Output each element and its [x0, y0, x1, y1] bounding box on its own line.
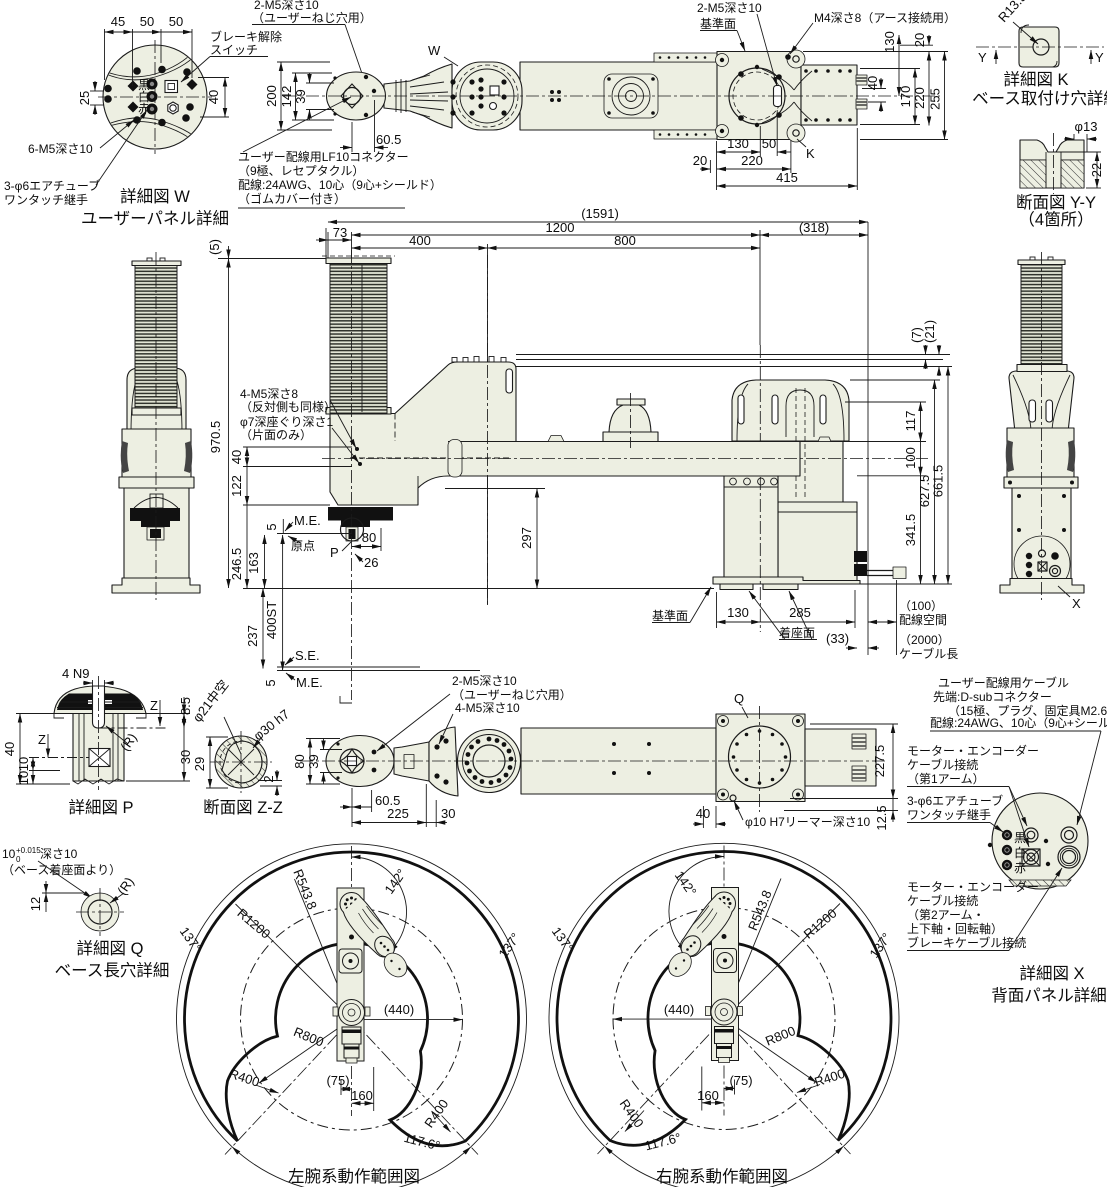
svg-text:M.E.: M.E. [294, 513, 321, 528]
svg-text:詳細図 W: 詳細図 W [120, 187, 190, 206]
svg-text:50: 50 [169, 14, 183, 29]
svg-text:右腕系動作範囲図: 右腕系動作範囲図 [656, 1167, 788, 1186]
svg-text:（ユーザーねじ穴用）: （ユーザーねじ穴用） [452, 687, 572, 702]
svg-text:ユーザー配線用ケーブル: ユーザー配線用ケーブル [938, 675, 1069, 690]
svg-text:（第1アーム）: （第1アーム） [907, 772, 985, 786]
svg-text:断面図 Y-Y: 断面図 Y-Y [1016, 193, 1096, 212]
svg-text:背面パネル詳細: 背面パネル詳細 [991, 986, 1107, 1005]
svg-text:詳細図 K: 詳細図 K [1003, 70, 1068, 89]
svg-text:ベース長穴詳細: ベース長穴詳細 [55, 961, 170, 980]
svg-text:φ10 H7リーマー深さ10: φ10 H7リーマー深さ10 [745, 815, 870, 829]
svg-text:詳細図 Q: 詳細図 Q [77, 939, 144, 958]
svg-text:800: 800 [614, 233, 636, 248]
svg-text:原点: 原点 [291, 539, 315, 553]
svg-text:30: 30 [178, 750, 193, 764]
svg-text:上下軸・回転軸）: 上下軸・回転軸） [907, 922, 1003, 936]
svg-text:ブレーキケーブル接続: ブレーキケーブル接続 [907, 935, 1026, 950]
svg-text:ケーブル長: ケーブル長 [899, 646, 958, 661]
svg-text:20: 20 [912, 33, 927, 47]
svg-text:(33): (33) [826, 631, 849, 646]
svg-text:122: 122 [229, 475, 244, 497]
svg-text:237: 237 [245, 625, 260, 647]
svg-text:(318): (318) [799, 220, 829, 235]
svg-text:40: 40 [865, 76, 880, 90]
svg-text:（2000）: （2000） [899, 633, 950, 647]
svg-text:246.5: 246.5 [229, 548, 244, 581]
svg-text:130: 130 [727, 605, 749, 620]
svg-text:（4箇所）: （4箇所） [1018, 210, 1093, 229]
svg-text:73: 73 [333, 225, 347, 240]
svg-text:341.5: 341.5 [903, 514, 918, 547]
svg-text:基準面: 基準面 [700, 16, 736, 31]
svg-text:6-M5深さ10: 6-M5深さ10 [28, 142, 93, 156]
svg-text:（ゴムカバー付き）: （ゴムカバー付き） [238, 191, 346, 206]
svg-text:X: X [1072, 596, 1081, 611]
svg-text:163: 163 [246, 552, 261, 574]
svg-text:2: 2 [261, 775, 276, 782]
svg-text:50: 50 [140, 14, 154, 29]
svg-text:227.5: 227.5 [872, 745, 887, 778]
svg-text:（9極、レセプタクル）: （9極、レセプタクル） [238, 163, 364, 178]
svg-text:W: W [428, 43, 441, 58]
svg-text:970.5: 970.5 [208, 421, 223, 454]
svg-text:（第2アーム・: （第2アーム・ [907, 908, 985, 922]
svg-text:ケーブル接続: ケーブル接続 [907, 757, 978, 772]
svg-text:1200: 1200 [546, 220, 575, 235]
svg-text:225: 225 [387, 806, 409, 821]
svg-text:基準面: 基準面 [652, 608, 688, 623]
svg-text:モーター・エンコーダー: モーター・エンコーダー [907, 743, 1039, 758]
svg-text:297: 297 [519, 527, 534, 549]
svg-text:130: 130 [727, 136, 749, 151]
svg-text:30: 30 [441, 806, 455, 821]
svg-text:(75): (75) [326, 1073, 349, 1088]
svg-text:+0.015: +0.015 [16, 846, 41, 855]
svg-text:ユーザー配線用LF10コネクター: ユーザー配線用LF10コネクター [238, 149, 409, 164]
svg-text:10: 10 [2, 847, 16, 861]
svg-text:3-φ6エアチューブ: 3-φ6エアチューブ [4, 178, 100, 193]
svg-text:130: 130 [882, 31, 897, 53]
svg-text:170: 170 [898, 86, 913, 108]
svg-text:Y: Y [978, 50, 987, 65]
svg-text:45: 45 [111, 14, 125, 29]
svg-text:スイッチ: スイッチ [210, 43, 258, 57]
svg-text:5: 5 [263, 679, 278, 686]
svg-text:4-M5深さ10: 4-M5深さ10 [455, 701, 520, 715]
svg-text:5: 5 [264, 523, 279, 530]
svg-text:(5): (5) [207, 239, 222, 255]
svg-text:10: 10 [16, 757, 31, 771]
svg-text:詳細図 P: 詳細図 P [68, 798, 133, 817]
svg-text:M.E.: M.E. [296, 675, 323, 690]
svg-text:2-M5深さ10: 2-M5深さ10 [452, 674, 517, 688]
svg-text:φ7深座ぐり深さ1: φ7深座ぐり深さ1 [240, 414, 333, 429]
svg-text:26: 26 [364, 555, 378, 570]
svg-text:Y: Y [1095, 50, 1104, 65]
svg-text:39: 39 [293, 89, 308, 103]
svg-text:（反対側も同様）: （反対側も同様） [240, 400, 336, 414]
svg-text:2-M5深さ10: 2-M5深さ10 [697, 1, 762, 15]
svg-text:（ベース着座面より）: （ベース着座面より） [2, 862, 121, 877]
svg-text:22: 22 [1089, 163, 1104, 177]
svg-text:配線空間: 配線空間 [899, 612, 947, 627]
svg-text:(1591): (1591) [581, 206, 619, 221]
svg-text:4-M5深さ8: 4-M5深さ8 [240, 387, 298, 401]
svg-text:Q: Q [734, 691, 744, 706]
svg-text:配線:24AWG、10心（9心+シールド）: 配線:24AWG、10心（9心+シールド） [238, 177, 442, 192]
svg-text:29: 29 [192, 757, 207, 771]
svg-text:K: K [806, 146, 815, 161]
svg-text:（片面のみ）: （片面のみ） [240, 428, 312, 442]
svg-text:40: 40 [206, 90, 221, 104]
svg-text:25: 25 [77, 91, 92, 105]
svg-text:Z: Z [150, 698, 158, 713]
svg-text:ワンタッチ継手: ワンタッチ継手 [4, 192, 88, 207]
svg-text:ケーブル接続: ケーブル接続 [907, 893, 978, 908]
svg-text:ユーザーパネル詳細: ユーザーパネル詳細 [81, 209, 229, 228]
svg-text:12.5: 12.5 [874, 805, 889, 830]
svg-text:（100）: （100） [899, 599, 943, 613]
svg-text:左腕系動作範囲図: 左腕系動作範囲図 [288, 1167, 420, 1186]
svg-text:P: P [330, 545, 339, 560]
svg-text:深さ10: 深さ10 [40, 847, 78, 861]
svg-text:160: 160 [697, 1088, 719, 1103]
svg-text:10: 10 [16, 771, 31, 785]
svg-text:S.E.: S.E. [295, 648, 320, 663]
svg-text:160: 160 [351, 1088, 373, 1103]
svg-text:(440): (440) [664, 1002, 694, 1017]
svg-text:39: 39 [306, 754, 321, 768]
svg-text:ブレーキ解除: ブレーキ解除 [210, 29, 282, 44]
svg-text:142: 142 [279, 86, 294, 108]
svg-text:ワンタッチ継手: ワンタッチ継手 [907, 807, 991, 822]
svg-text:8.5: 8.5 [178, 697, 193, 715]
svg-text:40: 40 [229, 450, 244, 464]
svg-text:255: 255 [928, 88, 943, 110]
svg-text:φ13: φ13 [1075, 119, 1098, 134]
svg-text:100: 100 [903, 447, 918, 469]
svg-text:80: 80 [362, 530, 376, 545]
svg-text:(75): (75) [729, 1073, 752, 1088]
svg-text:ベース取付け穴詳細: ベース取付け穴詳細 [972, 89, 1107, 108]
svg-text:Z: Z [38, 732, 46, 747]
svg-text:415: 415 [776, 170, 798, 185]
svg-text:白: 白 [1014, 845, 1026, 860]
svg-text:60.5: 60.5 [376, 132, 401, 147]
svg-text:50: 50 [762, 136, 776, 151]
svg-text:117: 117 [903, 411, 918, 432]
svg-text:着座面: 着座面 [779, 625, 815, 640]
svg-text:220: 220 [912, 87, 927, 109]
svg-text:285: 285 [789, 605, 811, 620]
svg-text:(440): (440) [384, 1002, 414, 1017]
svg-text:赤: 赤 [1014, 861, 1026, 875]
svg-text:400ST: 400ST [264, 601, 279, 639]
svg-text:20: 20 [693, 153, 707, 168]
svg-text:3-φ6エアチューブ: 3-φ6エアチューブ [907, 793, 1003, 808]
svg-text:M4深さ8（アース接続用）: M4深さ8（アース接続用） [814, 10, 956, 25]
svg-text:(21): (21) [922, 320, 937, 343]
svg-text:220: 220 [741, 153, 763, 168]
svg-text:4 N9: 4 N9 [62, 666, 89, 681]
svg-text:40: 40 [696, 806, 710, 821]
svg-text:配線:24AWG、10心（9心+シールド）: 配線:24AWG、10心（9心+シールド） [930, 715, 1107, 730]
svg-text:661.5: 661.5 [931, 465, 946, 498]
svg-text:モーター・エンコーダー: モーター・エンコーダー [907, 879, 1039, 894]
svg-text:先端:D-subコネクター: 先端:D-subコネクター [933, 690, 1052, 704]
svg-text:（ユーザーねじ穴用）: （ユーザーねじ穴用） [252, 10, 372, 25]
svg-text:80: 80 [292, 754, 307, 768]
svg-text:40: 40 [2, 742, 17, 756]
svg-text:断面図 Z-Z: 断面図 Z-Z [203, 798, 283, 817]
svg-text:12: 12 [28, 897, 43, 911]
svg-text:200: 200 [264, 85, 279, 107]
svg-text:詳細図 X: 詳細図 X [1019, 964, 1084, 983]
